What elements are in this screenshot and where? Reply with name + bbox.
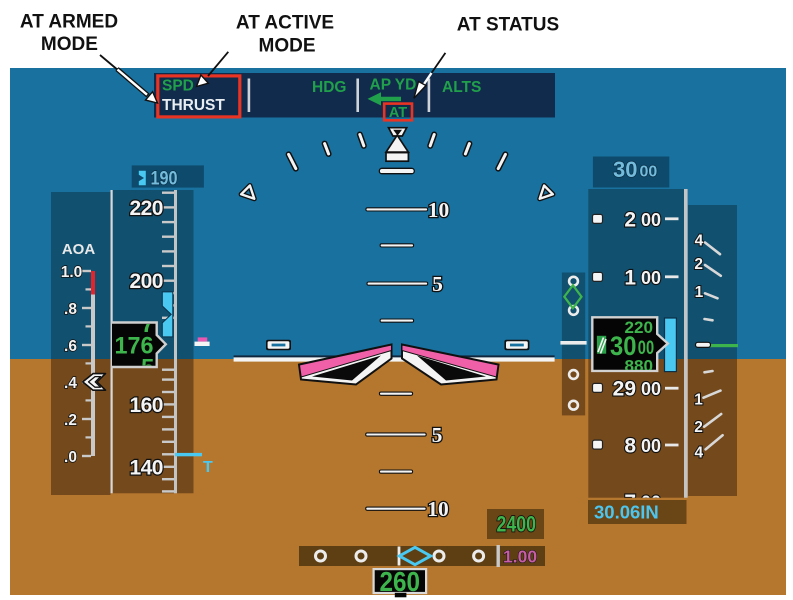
svg-text:30: 30: [613, 157, 637, 182]
svg-text:190: 190: [151, 169, 178, 190]
svg-text:30.06IN: 30.06IN: [594, 502, 659, 523]
svg-text:.8: .8: [64, 301, 77, 318]
svg-text:160: 160: [129, 394, 163, 417]
svg-text:1: 1: [694, 392, 703, 409]
svg-text:.2: .2: [64, 412, 77, 429]
svg-text:1: 1: [624, 267, 636, 290]
svg-text:140: 140: [129, 456, 163, 479]
svg-text:THRUST: THRUST: [162, 97, 225, 114]
svg-text:AT ACTIVE: AT ACTIVE: [236, 13, 334, 34]
svg-text:.6: .6: [64, 338, 77, 355]
svg-text:ALTS: ALTS: [442, 79, 481, 96]
svg-text:260: 260: [380, 566, 421, 597]
svg-text:MODE: MODE: [41, 34, 98, 55]
svg-text:.4: .4: [64, 375, 77, 392]
svg-text:200: 200: [129, 270, 163, 293]
svg-text:AOA: AOA: [62, 241, 96, 258]
svg-text:220: 220: [129, 197, 163, 220]
svg-text:5: 5: [432, 272, 443, 296]
svg-text:8: 8: [624, 434, 636, 457]
svg-text:AT STATUS: AT STATUS: [457, 15, 559, 36]
svg-text:4: 4: [694, 445, 703, 462]
svg-text:1.00: 1.00: [503, 546, 537, 566]
svg-text:4: 4: [695, 233, 704, 250]
svg-text:2: 2: [694, 419, 703, 436]
svg-text:AP YD: AP YD: [370, 77, 417, 94]
svg-text:SPD: SPD: [162, 78, 194, 95]
svg-text:29: 29: [613, 378, 636, 401]
svg-text:1: 1: [695, 284, 704, 301]
svg-text:00: 00: [638, 337, 654, 359]
svg-text:10: 10: [428, 198, 450, 222]
svg-text:1.0: 1.0: [61, 264, 83, 281]
svg-text:10: 10: [427, 497, 449, 521]
svg-text:AT ARMED: AT ARMED: [20, 12, 118, 33]
svg-text:00: 00: [640, 164, 658, 181]
svg-text:5: 5: [432, 423, 443, 447]
svg-text:00: 00: [641, 210, 661, 230]
svg-text:AT: AT: [389, 105, 407, 121]
svg-text:00: 00: [641, 379, 661, 399]
svg-text:MODE: MODE: [259, 36, 316, 57]
svg-text:2: 2: [624, 209, 636, 232]
svg-text:T: T: [203, 459, 213, 476]
svg-text:2: 2: [694, 256, 703, 273]
svg-text:2400: 2400: [497, 512, 537, 537]
svg-text:00: 00: [641, 436, 661, 456]
svg-text:.0: .0: [64, 449, 77, 466]
svg-text:220: 220: [625, 319, 654, 337]
svg-text:HDG: HDG: [312, 79, 346, 96]
svg-text:00: 00: [641, 268, 661, 288]
